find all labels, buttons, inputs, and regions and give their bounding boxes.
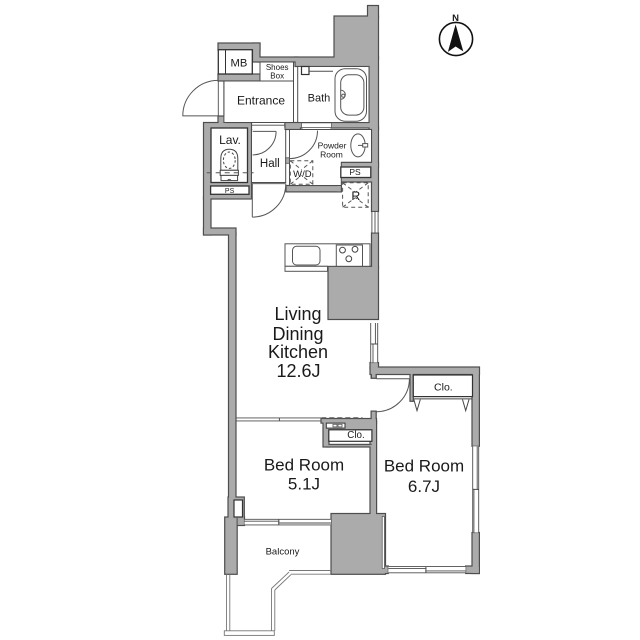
svg-text:5.1J: 5.1J <box>288 475 320 494</box>
svg-text:Shoes: Shoes <box>266 63 289 72</box>
svg-text:Box: Box <box>270 72 284 81</box>
svg-text:W/D: W/D <box>293 169 312 180</box>
svg-text:R: R <box>351 189 360 203</box>
svg-text:PS: PS <box>349 167 361 177</box>
svg-text:Bath: Bath <box>308 92 331 104</box>
svg-text:6.7J: 6.7J <box>408 477 440 496</box>
svg-text:Hall: Hall <box>260 158 280 170</box>
svg-text:Dining: Dining <box>272 324 323 344</box>
svg-text:Clo.: Clo. <box>434 381 453 393</box>
svg-text:12.6J: 12.6J <box>276 361 320 381</box>
svg-text:Bed Room: Bed Room <box>384 457 464 476</box>
svg-text:Living: Living <box>274 304 321 324</box>
svg-text:Entrance: Entrance <box>237 93 285 107</box>
svg-text:Lav.: Lav. <box>219 133 241 147</box>
svg-text:Bed Room: Bed Room <box>264 456 344 475</box>
svg-text:Balcony: Balcony <box>266 547 300 558</box>
svg-text:MB: MB <box>231 58 248 70</box>
svg-text:Kitchen: Kitchen <box>268 342 328 362</box>
svg-text:Room: Room <box>320 149 343 159</box>
svg-text:Clo.: Clo. <box>347 430 364 441</box>
svg-text:N: N <box>452 13 459 24</box>
svg-text:PS: PS <box>225 188 235 195</box>
